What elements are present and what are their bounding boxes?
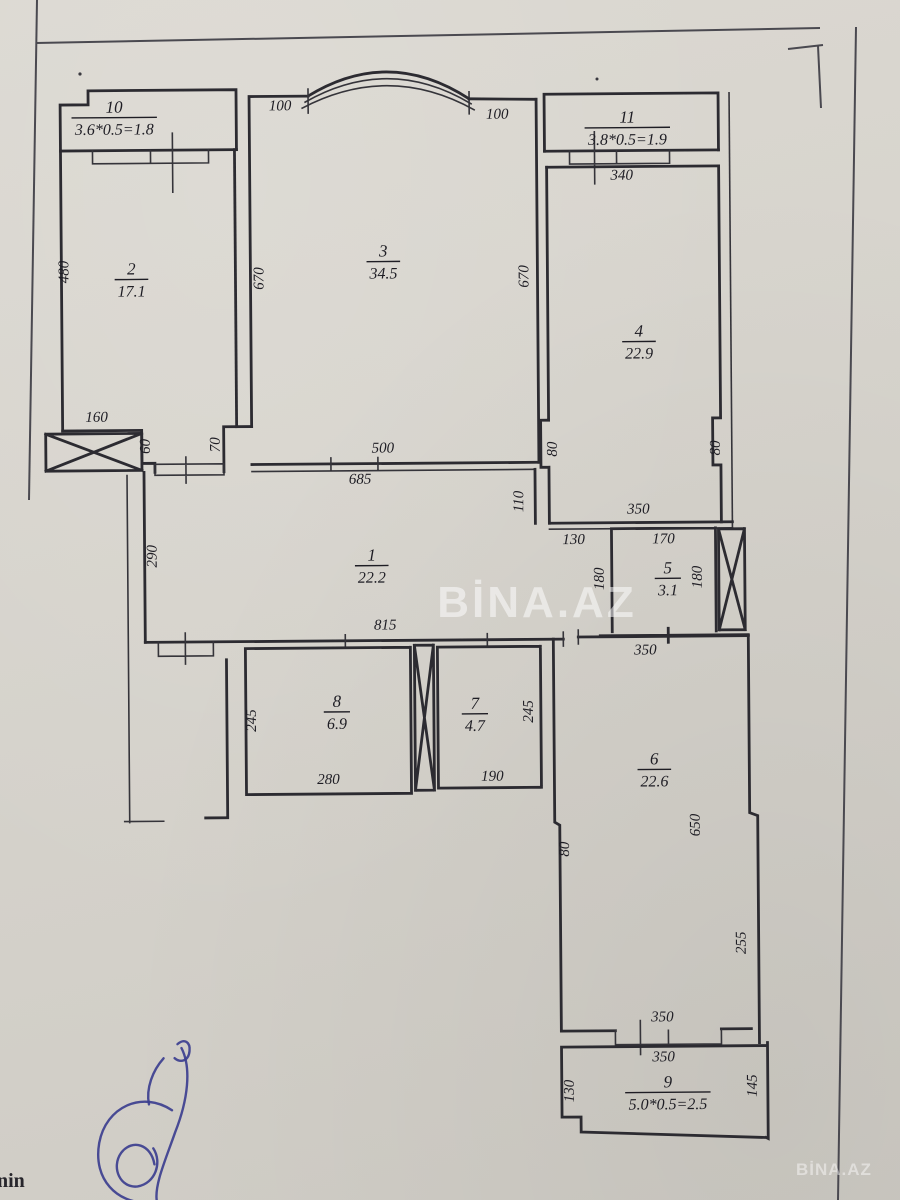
room2-right-wall — [234, 150, 236, 427]
room4-window-wall — [544, 150, 718, 151]
lobby-wall — [204, 660, 227, 818]
room-label-3: 334.5 — [366, 241, 400, 282]
dimension-label: 145 — [745, 1074, 761, 1097]
shaft-right — [718, 529, 745, 630]
bay-end-caps — [308, 88, 469, 115]
svg-text:10: 10 — [106, 98, 124, 117]
speck — [596, 78, 599, 81]
dimension-label: 245 — [521, 700, 537, 723]
svg-text:4.7: 4.7 — [465, 718, 486, 735]
svg-text:5.0*0.5=2.5: 5.0*0.5=2.5 — [629, 1096, 708, 1114]
room4-left-wall — [539, 167, 550, 523]
page-border-left — [29, 0, 37, 500]
dimension-label: 350 — [626, 501, 650, 517]
room3-top-right-wall — [469, 98, 536, 100]
dimension-label: 110 — [511, 490, 527, 512]
svg-text:9: 9 — [663, 1072, 672, 1091]
outer-right-wall — [729, 93, 732, 528]
dimension-label: 290 — [145, 545, 161, 568]
dimension-label: 130 — [562, 1079, 578, 1102]
page-border-right — [838, 27, 856, 1200]
svg-text:8: 8 — [332, 692, 341, 711]
room6-left-wall — [553, 639, 561, 1031]
shaft-left — [46, 433, 142, 471]
plan-group: 103.6*0.5=1.8217.1334.5113.8*0.5=1.9422.… — [43, 69, 769, 1200]
hall-door-band — [158, 633, 213, 664]
room4-bottom-wall — [549, 522, 732, 523]
svg-text:2: 2 — [127, 259, 136, 278]
svg-text:3.6*0.5=1.8: 3.6*0.5=1.8 — [74, 121, 154, 139]
svg-text:7: 7 — [470, 694, 480, 713]
svg-text:1: 1 — [367, 546, 376, 565]
room6-bottom-wall — [561, 1029, 751, 1031]
dimension-label: 170 — [652, 531, 675, 547]
speck — [78, 72, 81, 75]
page-border-top — [36, 28, 820, 43]
dimension-label: 60 — [138, 438, 154, 454]
room4-right-wall — [711, 166, 722, 522]
svg-text:17.1: 17.1 — [118, 283, 146, 300]
dimension-label: 685 — [349, 472, 372, 488]
room3-bottom-wall — [252, 462, 539, 464]
svg-text:3.8*0.5=1.9: 3.8*0.5=1.9 — [587, 131, 667, 149]
bay-arc-inner — [302, 78, 474, 111]
room3-right-wall — [536, 99, 539, 462]
svg-text:5: 5 — [663, 558, 672, 577]
svg-text:6: 6 — [650, 749, 659, 768]
edge-text-fragment: nin — [0, 1170, 25, 1193]
room-label-7: 74.7 — [462, 694, 489, 735]
dimension-label: 350 — [651, 1049, 675, 1065]
balcony-10-wall — [60, 90, 236, 151]
signature — [97, 1041, 191, 1200]
room-label-9: 95.0*0.5=2.5 — [625, 1072, 711, 1114]
dimension-label: 245 — [244, 709, 260, 732]
watermark-corner: BİNA.AZ — [796, 1160, 896, 1180]
room-label-2: 217.1 — [115, 259, 149, 300]
dimension-label: 670 — [516, 265, 532, 288]
dimension-label: 160 — [85, 410, 108, 426]
scanned-floor-plan-page: 103.6*0.5=1.8217.1334.5113.8*0.5=1.9422.… — [0, 0, 900, 1200]
svg-text:22.9: 22.9 — [625, 345, 653, 362]
watermark-center: BİNA.AZ — [352, 578, 722, 628]
dimension-label: 80 — [557, 841, 573, 857]
dimension-label: 70 — [208, 437, 224, 453]
room-label-8: 86.9 — [324, 692, 351, 733]
outer-left-line — [122, 475, 164, 822]
corner-mark — [788, 45, 823, 108]
room2-top-wall — [60, 150, 236, 151]
dimension-label: 190 — [481, 769, 504, 785]
dimension-label: 130 — [562, 532, 585, 548]
svg-text:6.9: 6.9 — [327, 716, 347, 733]
room-label-4: 422.9 — [622, 321, 656, 362]
dimension-label: 500 — [371, 440, 394, 456]
dimension-label: 650 — [688, 813, 704, 836]
dimension-label: 480 — [56, 260, 72, 283]
room2-left-wall — [60, 151, 62, 431]
dimension-label: 350 — [633, 642, 657, 658]
dimension-label: 255 — [734, 931, 750, 954]
dimension-label: 100 — [269, 98, 292, 114]
room-label-6: 622.6 — [637, 749, 671, 790]
dimension-label: 280 — [317, 772, 340, 788]
dimension-label: 80 — [708, 440, 724, 456]
dimension-label: 100 — [486, 107, 509, 123]
dimension-label: 340 — [609, 168, 633, 184]
dimension-label: 80 — [545, 441, 561, 457]
room3-left-wall — [249, 96, 311, 426]
svg-text:11: 11 — [619, 108, 635, 127]
room2-room3-joint — [224, 427, 252, 472]
svg-text:3: 3 — [378, 241, 388, 260]
room-label-11: 113.8*0.5=1.9 — [584, 107, 670, 149]
hall-bottom-wall — [145, 636, 748, 643]
svg-text:34.5: 34.5 — [368, 265, 397, 282]
dimension-label: 670 — [251, 267, 267, 290]
svg-text:22.6: 22.6 — [640, 773, 668, 790]
shaft-middle — [414, 645, 434, 790]
entrance-band — [155, 457, 224, 484]
room6-right-wall — [748, 636, 759, 1043]
svg-text:4: 4 — [635, 321, 644, 340]
dimension-label: 350 — [650, 1009, 674, 1025]
